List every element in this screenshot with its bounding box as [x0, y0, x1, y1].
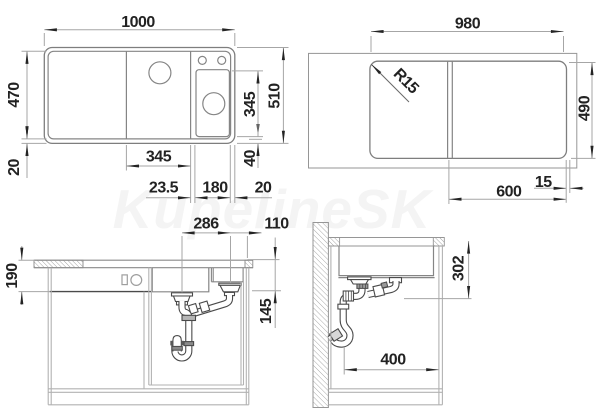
svg-text:345: 345 — [242, 91, 259, 117]
svg-text:980: 980 — [455, 15, 481, 32]
svg-text:180: 180 — [202, 180, 228, 197]
svg-text:20: 20 — [255, 180, 272, 197]
svg-text:600: 600 — [496, 184, 522, 201]
svg-text:400: 400 — [380, 352, 406, 369]
svg-text:40: 40 — [242, 150, 259, 167]
svg-text:145: 145 — [258, 298, 275, 324]
svg-text:110: 110 — [264, 215, 289, 232]
svg-text:302: 302 — [451, 255, 468, 281]
svg-text:286: 286 — [193, 215, 219, 232]
svg-text:1000: 1000 — [121, 14, 155, 31]
svg-text:345: 345 — [146, 149, 172, 166]
svg-text:490: 490 — [576, 95, 593, 121]
svg-text:23.5: 23.5 — [149, 180, 179, 197]
svg-text:15: 15 — [535, 174, 552, 191]
svg-text:20: 20 — [6, 159, 23, 176]
svg-text:510: 510 — [266, 83, 283, 109]
svg-text:470: 470 — [6, 82, 23, 108]
svg-text:190: 190 — [4, 263, 21, 289]
